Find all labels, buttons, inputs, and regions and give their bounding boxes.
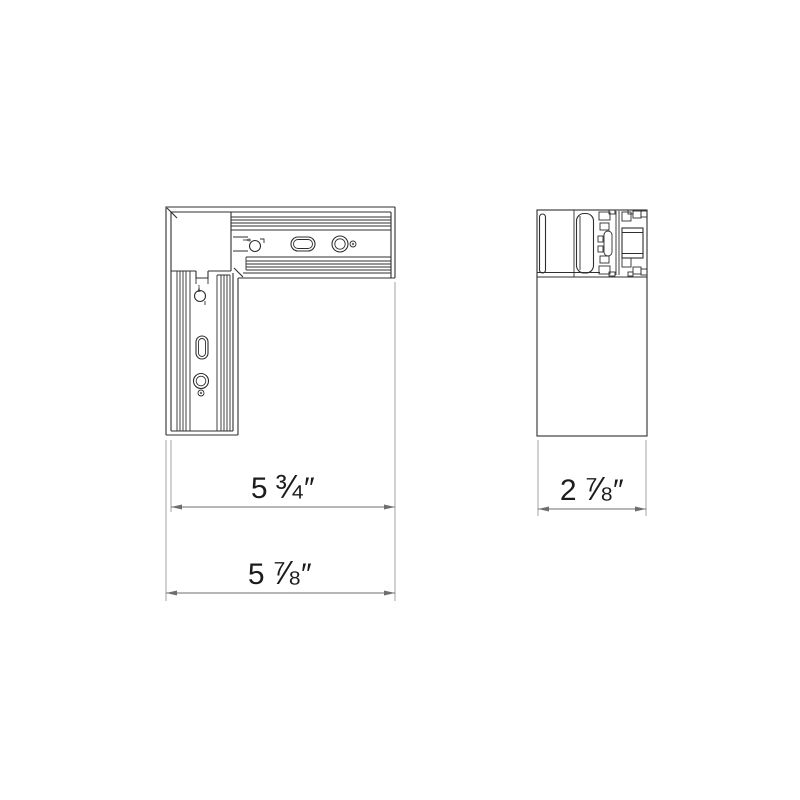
- dim-plan-overall-width: 5⅞″: [166, 282, 395, 601]
- latch-pin: [250, 241, 261, 252]
- latch-pin: [195, 291, 206, 302]
- vertical-mounting-features: [194, 336, 209, 396]
- arrowhead-left: [538, 507, 549, 512]
- drawing-canvas: 5¾″ 5⅞″ 2⅞″: [0, 0, 800, 800]
- dimension-label: 2⅞″: [560, 470, 624, 507]
- screw-hole-inner: [335, 239, 345, 249]
- side-outline: [537, 210, 647, 436]
- mounting-slot-inner: [199, 339, 206, 357]
- dim-side-width: 2⅞″: [538, 440, 646, 516]
- vertical-rail-ribs: [177, 271, 230, 431]
- screw-hole-inner: [196, 376, 206, 386]
- mounting-slot-inner: [294, 240, 313, 249]
- arrowhead-right: [384, 505, 395, 510]
- pilot-hole-center: [352, 243, 354, 245]
- arrowhead-left: [171, 505, 182, 510]
- dimension-label: 5¾″: [251, 468, 315, 505]
- arrowhead-right: [635, 507, 646, 512]
- pilot-hole-center: [200, 392, 202, 394]
- arrowhead-right: [384, 591, 395, 596]
- dim-plan-inner-width: 5¾″: [171, 440, 395, 512]
- latch-arrow-icon: [243, 238, 250, 241]
- horizontal-latch: [233, 237, 264, 252]
- corner-block: [171, 212, 231, 278]
- arrowhead-left: [166, 591, 177, 596]
- technical-drawing: 5¾″ 5⅞″ 2⅞″: [0, 0, 800, 800]
- plan-outline: [166, 207, 395, 435]
- plan-view: [166, 207, 395, 435]
- mounting-slot: [196, 336, 208, 359]
- side-view: [537, 210, 647, 436]
- horizontal-mounting-features: [291, 236, 356, 252]
- dimension-label: 5⅞″: [248, 554, 312, 591]
- horizontal-rail-ribs: [231, 217, 391, 270]
- vertical-latch: [195, 278, 209, 305]
